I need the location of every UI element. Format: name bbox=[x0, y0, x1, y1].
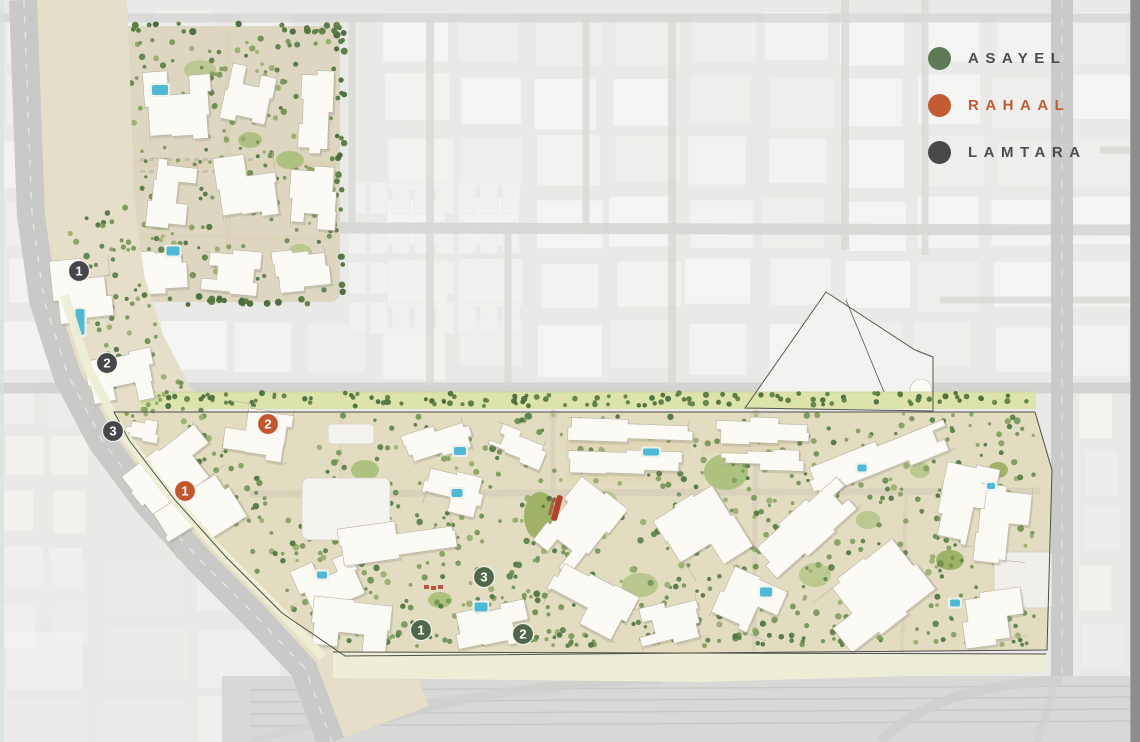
legend-label-rahaal: RAHAAL bbox=[968, 97, 1070, 114]
marker-lamtara-2[interactable]: 2 bbox=[97, 353, 118, 374]
marker-asayel-1[interactable]: 1 bbox=[411, 620, 432, 641]
image-right-edge bbox=[1130, 0, 1140, 742]
marker-rahaal-2[interactable]: 2 bbox=[258, 414, 279, 435]
marker-number: 2 bbox=[519, 627, 526, 642]
marker-number: 2 bbox=[103, 356, 110, 371]
legend-item-rahaal: RAHAAL bbox=[928, 94, 1070, 117]
marker-asayel-3[interactable]: 3 bbox=[474, 567, 495, 588]
legend-asayel-dot-icon bbox=[928, 47, 951, 70]
masterplan-screenshot: 12321312 ASAYELRAHAALLAMTARA bbox=[0, 0, 1140, 742]
legend-label-lamtara: LAMTARA bbox=[968, 144, 1087, 161]
legend-rahaal-dot-icon bbox=[928, 94, 951, 117]
marker-number: 2 bbox=[264, 417, 271, 432]
marker-number: 1 bbox=[181, 484, 188, 499]
marker-asayel-2[interactable]: 2 bbox=[513, 624, 534, 645]
legend-item-asayel: ASAYEL bbox=[928, 47, 1066, 70]
legend-label-asayel: ASAYEL bbox=[968, 50, 1066, 67]
marker-rahaal-1[interactable]: 1 bbox=[175, 481, 196, 502]
legend-lamtara-dot-icon bbox=[928, 141, 951, 164]
marker-number: 1 bbox=[417, 623, 424, 638]
marker-number: 1 bbox=[75, 264, 82, 279]
marker-number: 3 bbox=[109, 424, 116, 439]
marker-lamtara-3[interactable]: 3 bbox=[103, 421, 124, 442]
marker-lamtara-1[interactable]: 1 bbox=[69, 261, 90, 282]
image-left-edge bbox=[0, 0, 4, 742]
north-community-cluster bbox=[111, 21, 348, 307]
marker-number: 3 bbox=[480, 570, 487, 585]
legend-item-lamtara: LAMTARA bbox=[928, 141, 1087, 164]
